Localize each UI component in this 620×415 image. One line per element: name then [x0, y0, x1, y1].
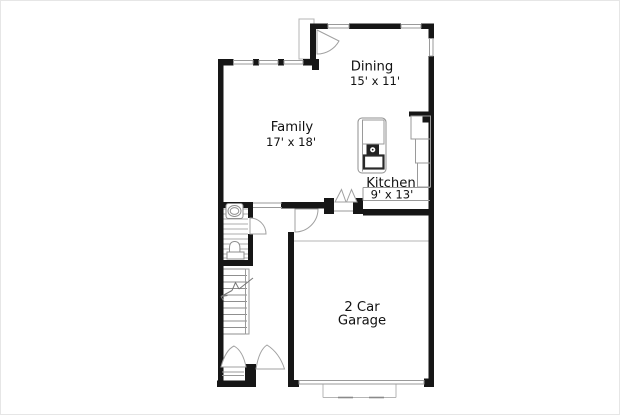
kitchen-dims: 9' x 13' — [371, 188, 414, 202]
window-icon — [284, 61, 303, 65]
family-room-dims: 17' x 18' — [266, 135, 316, 149]
window-icon — [234, 61, 254, 65]
walls — [217, 24, 434, 388]
garage-entry-door-swing-icon — [295, 209, 318, 232]
under-stair-shelf — [222, 372, 244, 376]
window-icon — [259, 61, 278, 65]
garage-label-line2: Garage — [338, 314, 386, 329]
garage-door-icon — [299, 381, 424, 385]
driveway-apron-icon — [323, 385, 396, 398]
family-room-label: Family — [271, 120, 314, 135]
range-island-icon — [358, 118, 386, 173]
front-door-swing-icon — [317, 30, 339, 54]
pedestal-sink-icon — [226, 204, 243, 219]
window-icon — [401, 25, 421, 29]
powder-room-fixtures — [226, 204, 244, 260]
powder-door-swing-icon — [250, 218, 266, 234]
floor-plan-canvas: Dining 15' x 11' Family 17' x 18' Kitche… — [0, 0, 620, 415]
window-icon — [430, 39, 434, 57]
dining-room-dims: 15' x 11' — [350, 74, 400, 88]
stair-treads — [224, 269, 248, 334]
floor-plan: Dining 15' x 11' Family 17' x 18' Kitche… — [1, 1, 620, 415]
cased-opening-icon — [253, 203, 282, 208]
window-icon — [328, 25, 349, 29]
dining-room-label: Dining — [351, 60, 394, 75]
